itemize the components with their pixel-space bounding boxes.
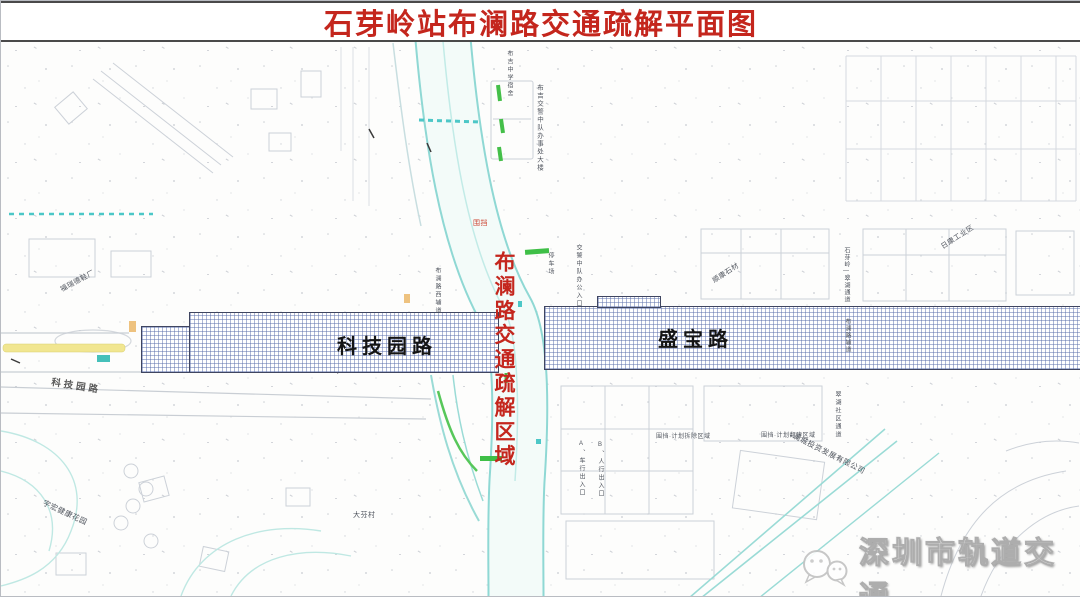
annotation-community-passage: 翠湖社区通道: [834, 391, 840, 439]
annotation-cuihu-passage: 石芽岭—翠湖通道: [843, 247, 849, 303]
annotation-office-entrance: 交警中队办公入口: [575, 244, 581, 308]
watermark: 深圳市轨道交通: [799, 528, 1080, 597]
road-label-shengbao: 盛宝路: [658, 330, 733, 350]
annotation-entrance-b: B、人行出入口: [597, 442, 603, 498]
annotation-bulan-frontage: 布澜路辅道: [844, 318, 850, 353]
annotation-hoarding-remove: 围挡·计划拆除区域: [656, 434, 711, 440]
wechat-icon: [799, 548, 851, 597]
annotation-police-building: 布吉交警中队办事处大楼: [535, 84, 542, 172]
page-title: 石芽岭站布澜路交通疏解平面图: [324, 1, 758, 43]
watermark-text: 深圳市轨道交通: [859, 528, 1080, 597]
plan-drawing-sheet: 石芽岭站布澜路交通疏解平面图: [0, 0, 1080, 597]
annotation-hoarding-red: 围挡: [473, 220, 488, 227]
diversion-zone-label: 布澜路交通疏解区域: [493, 251, 514, 469]
annotation-parking: 停车场: [547, 252, 553, 276]
annotation-west-frontage: 布澜路西辅道: [434, 267, 440, 315]
annotation-entrance-a: A、车行出入口: [578, 441, 584, 497]
road-label-kejiyuan: 科技园路: [337, 337, 437, 357]
map-canvas: 科技园路 盛宝路 布澜路交通疏解区域 科技园路 布吉交警中队办事处大楼 布吉中学…: [1, 42, 1080, 596]
corridor-band-left-tip: [141, 326, 191, 373]
corridor-band-right: [544, 306, 1080, 370]
annotation-dafen-village: 大芬村: [353, 512, 376, 519]
title-bar: 石芽岭站布澜路交通疏解平面图: [1, 1, 1080, 42]
annotation-school-dorm: 布吉中学宿舍: [506, 50, 512, 98]
corridor-band-right-bump: [597, 296, 661, 308]
